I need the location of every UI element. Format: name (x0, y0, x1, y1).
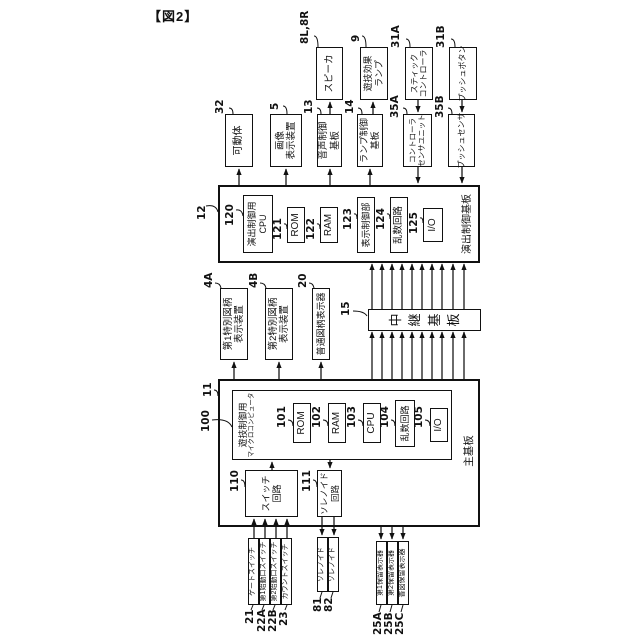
relay-board-label: 中継基板 (368, 309, 481, 331)
game-effect-lamp-ref: 9 (350, 35, 362, 42)
sound-control-board-label: 音声制御基板 (317, 114, 342, 167)
push-sensor-ref: 35B (434, 95, 446, 118)
normal-symbol-display-ref: 20 (297, 273, 309, 288)
figure: 演出制御基板12演出制御用CPU120ROM121RAM122表示制御部123乱… (0, 0, 640, 640)
special-symbol-display-1-label: 第1特別図柄表示装置 (220, 288, 248, 360)
effect-random-ref: 124 (375, 208, 387, 230)
effect-ram-ref: 122 (305, 218, 317, 240)
second-hold-display-label: 第2保留表示器 (387, 541, 398, 605)
special-symbol-display-1-ref: 4A (203, 273, 215, 288)
main-random-label: 乱数回路 (395, 400, 415, 447)
main-rom-ref: 101 (276, 406, 288, 428)
effect-cpu-ref: 120 (224, 204, 236, 226)
first-hold-display-label: 第1保留表示器 (376, 541, 387, 605)
gate-switch-ref: 21 (244, 609, 256, 624)
display-control-ref: 123 (342, 208, 354, 230)
main-board-ref: 11 (202, 382, 214, 397)
main-ram-ref: 102 (311, 406, 323, 428)
main-rom-label: ROM (293, 403, 311, 443)
effect-board-label: 演出制御基板 (460, 190, 475, 258)
main-io-label: I/O (430, 408, 448, 442)
microcomputer-ref: 100 (200, 410, 212, 432)
main-random-ref: 104 (379, 406, 391, 428)
count-switch-ref: 23 (278, 611, 290, 626)
normal-hold-display-label: 普図保留表示器 (398, 541, 409, 605)
main-ram-label: RAM (328, 403, 346, 443)
effect-ram-label: RAM (320, 207, 338, 243)
normal-symbol-display-label: 普通図柄表示器 (312, 288, 330, 360)
push-button-label: プッシュボタン (449, 47, 477, 100)
effect-random-label: 乱数回路 (390, 197, 408, 253)
second-start-switch-label: 第2始動口スイッチ (270, 538, 281, 605)
switch-circuit-ref: 110 (229, 470, 241, 492)
relay-board-ref: 15 (340, 301, 352, 316)
normal-hold-display-ref: 25C (394, 613, 406, 635)
effect-rom-ref: 121 (272, 218, 284, 240)
movable-body-ref: 32 (214, 99, 226, 114)
microcomputer-label: 遊技制御用マイクロコンピュータ (235, 391, 259, 459)
solenoid-circuit-label: ソレノイド回路 (317, 470, 342, 517)
push-button-ref: 31B (435, 25, 447, 48)
main-cpu-ref: 103 (346, 406, 358, 428)
first-start-switch-label: 第1始動口スイッチ (259, 538, 270, 605)
main-board-label: 主基板 (462, 428, 477, 474)
effect-rom-label: ROM (287, 207, 305, 243)
speaker-ref: 8L,8R (299, 11, 311, 44)
solenoid-82-label: ソレノイド (328, 537, 339, 592)
special-symbol-display-2-ref: 4B (248, 273, 260, 288)
effect-io-label: I/O (423, 208, 443, 242)
speaker-label: スピーカ (316, 47, 343, 100)
lamp-control-board-label: ランプ制御基板 (357, 114, 383, 167)
effect-board-ref: 12 (196, 205, 208, 220)
push-sensor-label: プッシュセンサ (448, 114, 475, 167)
solenoid-circuit-ref: 111 (301, 470, 313, 492)
game-effect-lamp-label: 遊技効果ランプ (360, 47, 388, 100)
main-io-ref: 105 (413, 406, 425, 428)
effect-io-ref: 125 (408, 212, 420, 234)
count-switch-label: カウントスイッチ (281, 538, 292, 605)
controller-sensor-unit-ref: 35A (389, 95, 401, 118)
switch-circuit-label: スイッチ回路 (245, 470, 298, 517)
sound-control-board-ref: 13 (303, 99, 315, 114)
lamp-control-board-ref: 14 (344, 99, 356, 114)
gate-switch-label: ゲートスイッチ (248, 538, 259, 605)
stick-controller-ref: 31A (390, 25, 402, 48)
solenoid-82-ref: 82 (323, 597, 335, 612)
movable-body-label: 可動体 (225, 114, 253, 167)
solenoid-81-label: ソレノイド (317, 537, 328, 592)
stick-controller-label: スティックコントローラ (405, 47, 433, 100)
controller-sensor-unit-label: コントローラセンサユニット (403, 114, 432, 167)
effect-cpu-label: 演出制御用CPU (243, 195, 273, 253)
image-display-label: 画像表示装置 (270, 114, 302, 167)
display-control-label: 表示制御部 (357, 197, 375, 253)
image-display-ref: 5 (269, 103, 281, 110)
special-symbol-display-2-label: 第2特別図柄表示装置 (265, 288, 293, 360)
